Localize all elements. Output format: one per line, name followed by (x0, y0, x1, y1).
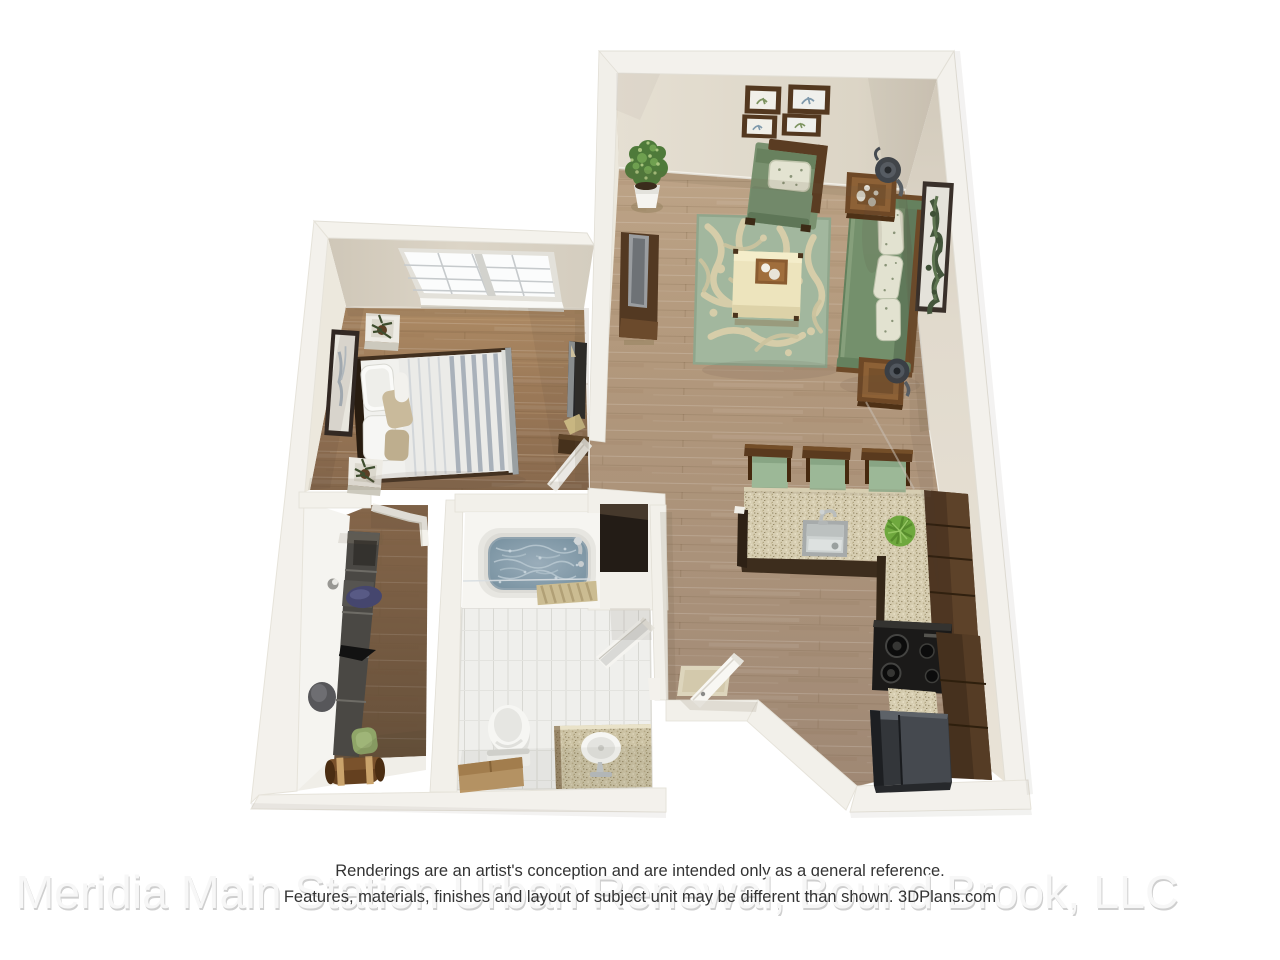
svg-text:Features, materials, finishes: Features, materials, finishes and layout… (284, 888, 996, 906)
